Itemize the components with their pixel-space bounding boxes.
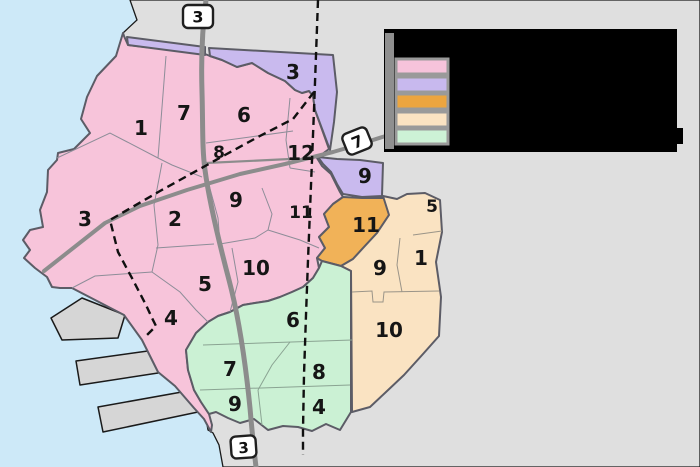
district-label-pink-10: 10 [242,256,270,280]
district-label-pink-3: 3 [78,207,92,231]
legend-swatch-cream [396,112,448,127]
district-label-pink-11: 11 [289,203,313,223]
district-label-green-8: 8 [312,360,326,384]
district-label-green-7: 7 [223,357,237,381]
district-label-pink-9: 9 [229,188,243,212]
district-label-green-4: 4 [312,395,326,419]
district-label-pink-2: 2 [168,207,182,231]
district-label-pink-5: 5 [198,272,212,296]
district-label-cream-10: 10 [375,318,403,342]
district-label-purple-9: 9 [358,164,372,188]
legend-swatch-green [396,129,448,144]
route-marker-3-top-label: 3 [192,8,203,27]
route-marker-3-top: 3 [183,5,213,28]
district-label-pink-4: 4 [164,306,178,330]
legend [384,29,683,152]
map-canvas: 3 7 3 17681292113105439115191067894 [0,0,700,467]
district-label-orange-11: 11 [352,213,380,237]
city-district-map: 3 7 3 17681292113105439115191067894 [0,0,700,467]
legend-swatch-pink [396,59,448,74]
district-label-pink-8: 8 [213,143,225,163]
district-label-cream-9: 9 [373,256,387,280]
district-label-green-9: 9 [228,392,242,416]
district-label-purple-3: 3 [286,60,300,84]
legend-swatch-orange [396,94,448,109]
legend-box-notch [675,128,683,144]
route-marker-3-bottom: 3 [230,435,256,459]
legend-side-strip [385,33,394,149]
legend-swatch-purple [396,77,448,92]
route-marker-3-bottom-label: 3 [238,439,250,458]
district-label-pink-7: 7 [177,101,191,125]
district-label-pink-1: 1 [134,116,148,140]
district-label-cream-5: 5 [426,197,438,217]
district-label-pink-12: 12 [287,141,315,165]
district-label-green-6: 6 [286,308,300,332]
district-label-cream-1: 1 [414,246,428,270]
district-label-pink-6: 6 [237,103,251,127]
